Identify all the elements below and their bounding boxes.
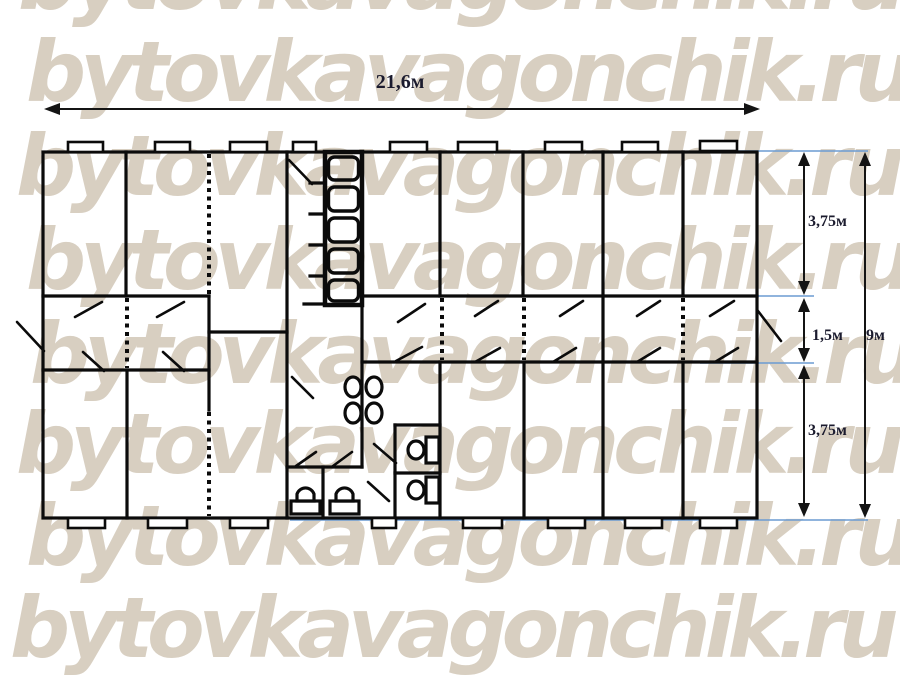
washbasin-icon [366, 403, 382, 423]
washstands [291, 488, 359, 514]
window-icon [625, 518, 662, 528]
floor-plan-page: bytovkavagonchik.ru bytovkavagonchik.ru … [0, 0, 900, 675]
dimension-guides-blue [290, 151, 868, 520]
window-icon [548, 518, 585, 528]
door-swing-icon [560, 301, 583, 316]
toilet-icon [408, 477, 439, 503]
floor-plan-drawing [0, 0, 900, 675]
toilets [408, 437, 439, 503]
door-swing-icon [637, 348, 660, 362]
window-icon [68, 518, 105, 528]
door-swing-icon [83, 352, 104, 371]
window-icon [545, 142, 582, 152]
window-icon [458, 142, 497, 152]
dimension-label-lower-depth: 3,75м [808, 423, 847, 439]
door-swing-icon [637, 301, 660, 316]
door-swing-icon [163, 352, 184, 371]
door-swing-icon [292, 377, 313, 398]
windows-top [68, 141, 737, 152]
door-swing-icon [475, 348, 500, 362]
door-swing-icon [75, 302, 102, 317]
washbasin-icon [345, 377, 361, 397]
door-swing-icon [368, 482, 389, 501]
interior-walls [43, 152, 757, 518]
window-icon [372, 518, 396, 528]
door-swings [17, 160, 781, 501]
window-icon [230, 518, 268, 528]
window-icon [700, 141, 737, 151]
washbasin-icon [345, 403, 361, 423]
window-icon [230, 142, 267, 152]
door-swing-icon [289, 160, 312, 184]
door-swing-icon [374, 444, 396, 463]
window-icon [155, 142, 190, 152]
dimension-label-corridor-depth: 1,5м [812, 328, 843, 344]
staircase-icon [304, 152, 362, 305]
exterior-walls [43, 152, 757, 518]
door-swing-icon [17, 322, 44, 351]
door-swing-icon [396, 347, 422, 361]
door-swing-icon [710, 301, 734, 316]
washstand-icon [330, 488, 359, 514]
door-swing-icon [333, 452, 352, 466]
window-icon [622, 142, 658, 152]
window-icon [148, 518, 187, 528]
dimension-label-total-depth: 9м [866, 328, 885, 344]
washbasin-icon [366, 377, 382, 397]
door-swing-icon [715, 348, 738, 362]
window-icon [293, 142, 316, 152]
door-swing-icon [398, 304, 425, 322]
window-icon [68, 142, 103, 152]
window-icon [463, 518, 502, 528]
door-swing-icon [475, 301, 498, 316]
door-swing-icon [758, 311, 781, 341]
toilet-icon [408, 437, 439, 463]
door-swing-icon [296, 452, 316, 466]
window-icon [390, 142, 427, 152]
dimension-label-upper-depth: 3,75м [808, 214, 847, 230]
door-swing-icon [157, 302, 184, 317]
door-swing-icon [553, 348, 576, 362]
window-icon [700, 518, 737, 528]
washstand-icon [291, 488, 320, 514]
dimension-label-total-width: 21,6м [330, 72, 470, 92]
